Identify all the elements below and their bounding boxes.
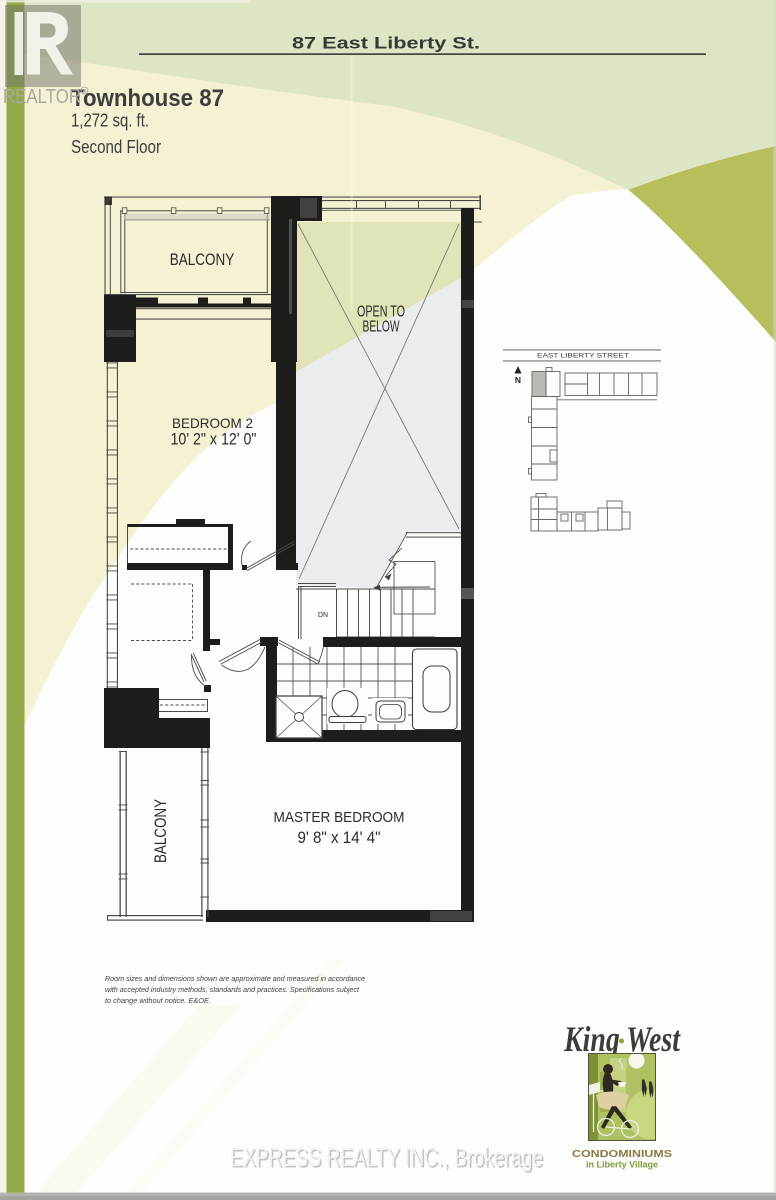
svg-text:BELOW: BELOW — [363, 319, 401, 336]
svg-text:BALCONY: BALCONY — [151, 799, 170, 863]
svg-text:10' 2" x 12' 0": 10' 2" x 12' 0" — [171, 431, 257, 449]
svg-text:DN: DN — [318, 612, 328, 619]
svg-text:BEDROOM 2: BEDROOM 2 — [172, 415, 253, 431]
svg-text:N: N — [515, 375, 521, 385]
svg-text:with accepted industry methods: with accepted industry methods, standard… — [105, 987, 360, 994]
svg-text:EAST LIBERTY STREET: EAST LIBERTY STREET — [537, 353, 629, 360]
svg-text:1,272 sq. ft.: 1,272 sq. ft. — [71, 111, 149, 131]
svg-text:87 East Liberty St.: 87 East Liberty St. — [292, 35, 480, 53]
svg-text:R: R — [83, 89, 87, 95]
svg-text:Second Floor: Second Floor — [71, 137, 161, 157]
svg-text:to change without notice. E&OE: to change without notice. E&OE. — [105, 998, 211, 1005]
svg-text:in Liberty Village: in Liberty Village — [586, 1160, 658, 1170]
svg-text:REALTOR: REALTOR — [3, 86, 81, 108]
svg-text:Room sizes and dimensions show: Room sizes and dimensions shown are appr… — [105, 976, 365, 983]
svg-text:BALCONY: BALCONY — [170, 250, 235, 269]
svg-text:9' 8" x 14' 4": 9' 8" x 14' 4" — [298, 829, 381, 847]
svg-text:EXPRESS REALTY INC., Brokerage: EXPRESS REALTY INC., Brokerage — [230, 1142, 543, 1172]
svg-text:CONDOMINIUMS: CONDOMINIUMS — [572, 1149, 672, 1160]
svg-text:Townhouse 87: Townhouse 87 — [71, 85, 224, 112]
svg-text:MASTER BEDROOM: MASTER BEDROOM — [274, 809, 405, 826]
